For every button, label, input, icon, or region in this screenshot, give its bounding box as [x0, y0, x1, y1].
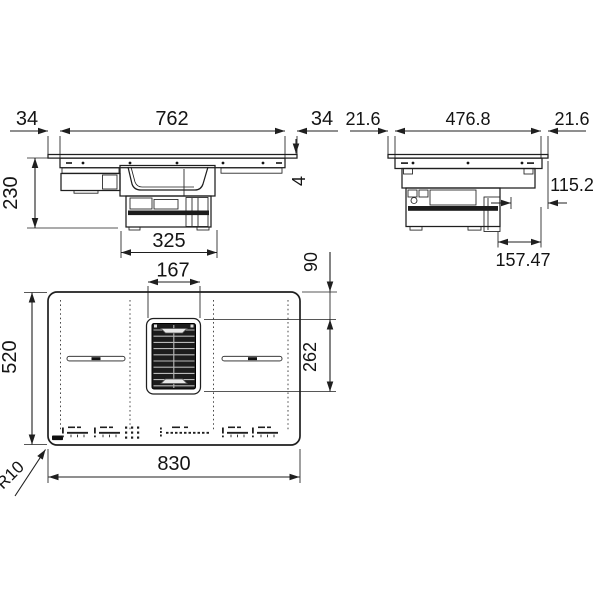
dim-duct-width: 325 — [152, 230, 185, 252]
top-plan-view: 167 90 262 520 830 R10 — [0, 252, 337, 496]
dim-depth: 520 — [0, 340, 21, 373]
downdraft-duct-front — [120, 166, 215, 231]
technical-drawing-page: 34 762 34 230 4 325 — [0, 0, 600, 600]
dim-body-width: 762 — [155, 108, 188, 130]
vent-grille — [147, 319, 201, 395]
center-slider-icon — [160, 427, 210, 437]
dim-width: 830 — [157, 453, 190, 475]
induction-coil-strips — [62, 168, 282, 173]
hob-body-tray-side — [395, 158, 542, 168]
dim-overhang-front: 21.6 — [345, 109, 380, 129]
cooking-zone-marker-right — [222, 356, 282, 361]
dim-vent-offset-top: 90 — [301, 252, 321, 272]
zone-slider-icon-1 — [62, 427, 88, 438]
zone-slider-icon-4 — [252, 427, 278, 438]
dim-duct-depth: 157.47 — [495, 250, 550, 270]
lower-housing-side — [402, 169, 535, 189]
dim-duct-clearance: 115.2 — [550, 175, 594, 195]
dim-vent-length: 262 — [300, 342, 320, 372]
dim-corner-radius: R10 — [0, 457, 28, 492]
front-view-dimensions: 34 762 34 230 4 325 — [0, 108, 338, 258]
grille-handle-top — [161, 329, 187, 334]
zone-slider-icon-3 — [222, 427, 248, 438]
dim-overhang-right: 34 — [311, 108, 333, 130]
side-section-view: 21.6 476.8 21.6 115.2 157.47 — [345, 109, 593, 270]
grille-handle-bottom — [161, 379, 187, 384]
dim-glass-thickness: 4 — [289, 176, 309, 186]
zone-slider-icon-2 — [94, 427, 120, 438]
touch-control-strip — [62, 427, 278, 439]
dim-vent-width: 167 — [156, 260, 189, 282]
fan-control-icon — [125, 427, 139, 439]
hob-body-tray-front — [60, 158, 285, 168]
front-section-view: 34 762 34 230 4 325 — [0, 108, 338, 258]
hob-drawing-svg: 34 762 34 230 4 325 — [0, 0, 600, 600]
dim-height: 230 — [0, 176, 22, 209]
dim-overhang-rear: 21.6 — [554, 109, 589, 129]
dim-overhang-left: 34 — [16, 108, 38, 130]
dim-body-depth: 476.8 — [445, 109, 490, 129]
fan-unit-side — [406, 188, 500, 232]
electronics-box — [61, 174, 120, 194]
side-view-dimensions: 21.6 476.8 21.6 115.2 157.47 — [345, 109, 593, 270]
cooking-zone-marker-left — [67, 356, 125, 361]
brand-logo — [52, 436, 63, 441]
